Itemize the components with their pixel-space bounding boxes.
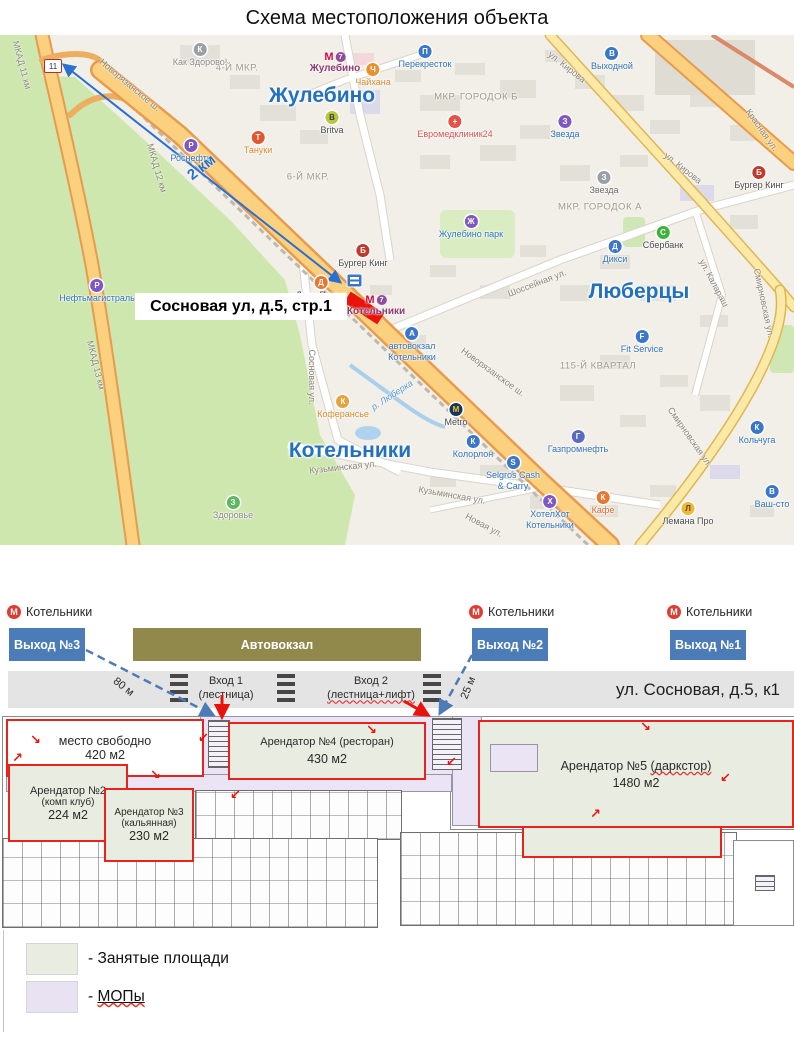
map-poi: ККафе <box>592 491 615 515</box>
poi-label: автовокзал <box>389 341 436 351</box>
poi-icon: Ж <box>465 215 478 228</box>
poi-label: Ваш-сто <box>755 499 790 509</box>
poi-icon: А <box>406 327 419 340</box>
poi-label: Britva <box>320 125 343 135</box>
poi-icon: К <box>750 421 763 434</box>
legend-swatch-occupied <box>26 943 78 975</box>
map-poi: ББургер Кинг <box>734 166 783 190</box>
poi-icon: З <box>558 115 571 128</box>
map-poi: ППерекресток <box>399 45 452 69</box>
poi-icon: Б <box>356 244 369 257</box>
map-road-label: Сосновая ул. <box>307 349 317 404</box>
map-road-label: Шоссейная ул. <box>506 267 567 298</box>
poi-icon: В <box>606 47 619 60</box>
plan-arrows <box>0 585 794 1049</box>
poi-label: Тануки <box>244 145 273 155</box>
poi-label: Как Здорово! <box>173 57 228 67</box>
poi-icon: Б <box>752 166 765 179</box>
poi-icon: Р <box>184 139 197 152</box>
map-road-label: ул. Кирова <box>662 150 703 185</box>
map-city-label: Котельники <box>289 439 411 463</box>
metro-m-icon: М <box>365 294 374 306</box>
divider-line <box>3 930 4 1032</box>
poi-label: Fit Service <box>621 344 664 354</box>
legend-label: - Занятые площади <box>88 950 229 968</box>
poi-icon: К <box>596 491 609 504</box>
map-road-label: Новорязанское ш. <box>98 57 163 113</box>
location-map: ЖулебиноЛюберцыКотельники4-Й МКР.6-Й МКР… <box>0 35 794 545</box>
map-poi: ЗЗвезда <box>589 171 618 195</box>
poi-label: Бургер Кинг <box>734 180 783 190</box>
poi-icon: В <box>765 485 778 498</box>
poi-icon: Т <box>251 131 264 144</box>
poi-label: Дикси <box>603 254 628 264</box>
map-poi: ВВаш-сто <box>755 485 790 509</box>
poi-icon: К <box>467 435 480 448</box>
poi-label: Лемана Про <box>662 516 713 526</box>
map-poi: ЖЖулебино парк <box>439 215 503 239</box>
poi-label: Selgros Cash <box>486 470 540 480</box>
poi-icon: F <box>635 330 648 343</box>
poi-label: Сбербанк <box>643 240 683 250</box>
poi-icon: + <box>449 115 462 128</box>
map-poi: ГГазпромнефть <box>548 430 608 454</box>
map-poi: SSelgros Cash& Carry <box>486 456 540 492</box>
poi-label: Бургер Кинг <box>338 258 387 268</box>
poi-icon: К <box>193 43 206 56</box>
poi-label: Нефтьмагистраль <box>59 293 135 303</box>
poi-label: Перекресток <box>399 59 452 69</box>
poi-icon: Ч <box>366 63 379 76</box>
poi-label: Газпромнефть <box>548 444 608 454</box>
map-poi: ККак Здорово! <box>173 43 228 67</box>
map-poi: ЗЗвезда <box>550 115 579 139</box>
poi-icon: S <box>507 456 520 469</box>
address-callout: Сосновая ул, д.5, стр.1 <box>135 293 347 320</box>
map-road-label: Смирновская ул. <box>666 405 715 468</box>
poi-icon: Х <box>544 495 557 508</box>
map-district-label: МКР. ГОРОДОК А <box>558 202 642 213</box>
metro-station-label: Жулебино <box>310 63 361 74</box>
map-poi: FFit Service <box>621 330 664 354</box>
legend-occupied: - Занятые площади <box>26 943 229 975</box>
poi-label: Кольчуга <box>739 435 776 445</box>
poi-icon: Д <box>314 276 327 289</box>
poi-label: Евромедклиник24 <box>417 129 492 139</box>
map-road-label: МКАД 11 км <box>11 40 33 91</box>
metro-m-icon: М <box>324 51 333 63</box>
map-road-label: МКАД 13 км <box>85 339 107 390</box>
map-road-label: МКАД 12 км <box>145 142 168 193</box>
map-district-label: 115-Й КВАРТАЛ <box>560 361 636 372</box>
map-poi: МMetro <box>444 403 467 427</box>
poi-label: Чайхана <box>355 77 390 87</box>
page: Схема местоположения объекта <box>0 0 794 1049</box>
poi-icon: Р <box>90 279 103 292</box>
poi-label: Котельники <box>388 352 436 362</box>
map-poi: ТТануки <box>244 131 273 155</box>
map-poi: +Евромедклиник24 <box>417 115 492 139</box>
map-poi: ККольчуга <box>739 421 776 445</box>
map-metro-station: М7Котельники <box>347 294 405 317</box>
metro-icons: М7 <box>365 294 386 306</box>
poi-icon: Г <box>572 430 585 443</box>
poi-icon: М <box>449 403 462 416</box>
poi-icon: З <box>597 171 610 184</box>
map-poi: ВВыходной <box>591 47 633 71</box>
map-poi: ККоферансье <box>317 395 369 419</box>
poi-icon: З <box>227 496 240 509</box>
map-poi: ББургер Кинг <box>338 244 387 268</box>
map-metro-station: М7Жулебино <box>310 51 361 74</box>
map-road-label: р. Люберка <box>369 378 414 412</box>
map-road-label: Смирновская ул. <box>752 268 776 339</box>
map-road-label: ул. Кирова <box>546 49 587 84</box>
poi-icon: B <box>325 111 338 124</box>
poi-icon: С <box>657 226 670 239</box>
poi-label: Metro <box>444 417 467 427</box>
map-poi: ХХотелХотКотельники <box>526 495 574 531</box>
legend-swatch-mop <box>26 981 78 1013</box>
poi-icon: Д <box>608 240 621 253</box>
poi-label: Выходной <box>591 61 633 71</box>
floor-plan-scheme: М Котельники М Котельники М Котельники В… <box>0 585 794 1049</box>
map-road-label: Новорязанское ш. <box>459 346 526 399</box>
metro-line-badge: 7 <box>336 52 346 62</box>
map-road-label: Кузьминская ул. <box>418 484 487 506</box>
poi-icon: П <box>419 45 432 58</box>
map-poi: ДДикси <box>603 240 628 264</box>
map-city-label: Люберцы <box>589 280 690 304</box>
page-title: Схема местоположения объекта <box>0 7 794 30</box>
map-road-label: ул. Калараш <box>697 258 730 309</box>
metro-line-badge: 7 <box>377 295 387 305</box>
map-city-label: Жулебино <box>269 84 375 108</box>
poi-label: Звезда <box>589 185 618 195</box>
poi-label: & Carry <box>498 481 529 491</box>
map-poi: АавтовокзалКотельники <box>388 327 436 363</box>
map-poi: РНефтьмагистраль <box>59 279 135 303</box>
metro-icons: М7 <box>324 51 345 63</box>
map-district-label: МКР. ГОРОДОК Б <box>434 92 518 103</box>
map-poi: ЗЗдоровье <box>213 496 253 520</box>
poi-icon: К <box>337 395 350 408</box>
legend-label: - МОПы <box>88 988 145 1006</box>
poi-label: Здоровье <box>213 510 253 520</box>
map-poi: ССбербанк <box>643 226 683 250</box>
poi-label: ХотелХот <box>530 509 570 519</box>
map-labels-layer: ЖулебиноЛюберцыКотельники4-Й МКР.6-Й МКР… <box>0 35 794 545</box>
map-road-label: Красная ул. <box>744 107 780 153</box>
poi-label: Жулебино парк <box>439 229 503 239</box>
poi-icon: Л <box>682 502 695 515</box>
map-district-label: 6-Й МКР. <box>287 172 330 183</box>
map-road-label: Новая ул. <box>464 511 505 539</box>
poi-label: Звезда <box>550 129 579 139</box>
poi-label: Кафе <box>592 505 615 515</box>
map-poi: BBritva <box>320 111 343 135</box>
road-number-sign: 11 <box>44 59 62 73</box>
legend-mop: - МОПы <box>26 981 145 1013</box>
map-poi: ЛЛемана Про <box>662 502 713 526</box>
poi-label: Коферансье <box>317 409 369 419</box>
metro-station-label: Котельники <box>347 306 405 317</box>
poi-label: Котельники <box>526 520 574 530</box>
